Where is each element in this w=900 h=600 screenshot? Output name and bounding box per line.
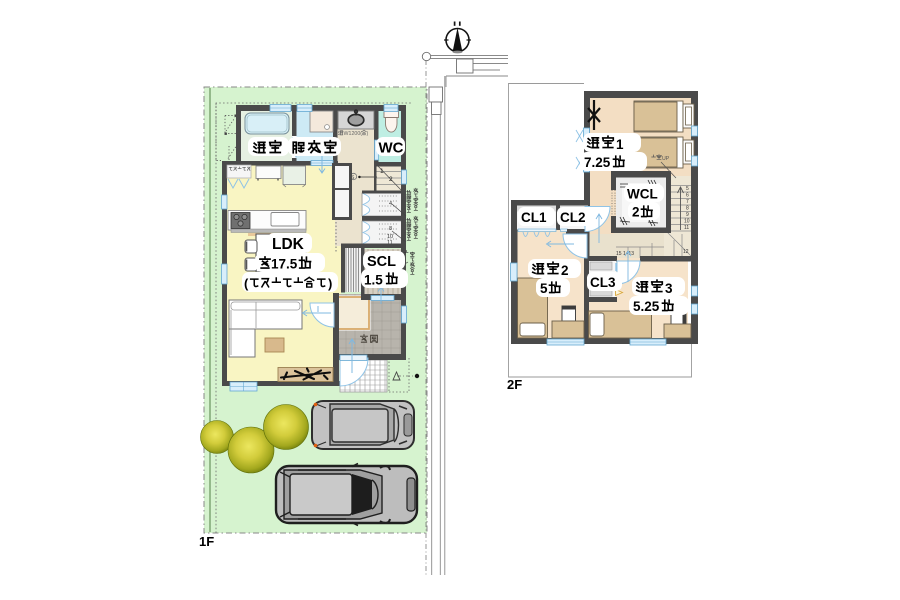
svg-text:2: 2: [632, 205, 640, 220]
svg-text:LDK: LDK: [272, 236, 305, 253]
svg-text:): ): [367, 131, 369, 137]
svg-text:1: 1: [616, 137, 624, 152]
svg-text:CL2: CL2: [560, 210, 586, 225]
svg-text:5: 5: [540, 281, 548, 296]
svg-text:2: 2: [561, 263, 569, 278]
svg-text:12: 12: [683, 249, 689, 255]
svg-text:CL1: CL1: [521, 210, 547, 225]
svg-text:15 1413: 15 1413: [616, 251, 634, 257]
svg-text:WC: WC: [379, 140, 404, 157]
svg-text:4: 4: [389, 201, 392, 207]
svg-text:2: 2: [389, 176, 393, 183]
svg-text:7: 7: [686, 199, 689, 205]
svg-text:WCL: WCL: [627, 187, 658, 202]
svg-text:1: 1: [380, 168, 384, 175]
svg-text:8: 8: [686, 206, 689, 212]
svg-text:5: 5: [686, 186, 689, 192]
svg-text:8: 8: [389, 226, 392, 232]
svg-text:): ): [328, 276, 332, 291]
svg-text:W1200(: W1200(: [344, 131, 363, 137]
svg-text:(: (: [244, 276, 249, 291]
svg-text:2F: 2F: [507, 377, 522, 392]
svg-text:9: 9: [686, 212, 689, 218]
svg-text:11: 11: [684, 225, 689, 231]
svg-text:3: 3: [665, 281, 673, 296]
svg-text:6: 6: [686, 193, 689, 199]
svg-text:1F: 1F: [199, 534, 214, 549]
svg-text:CL3: CL3: [590, 275, 616, 290]
svg-text:5.25: 5.25: [633, 299, 660, 314]
svg-text:UP: UP: [662, 156, 670, 162]
svg-text:1.5: 1.5: [364, 273, 383, 288]
svg-text:7.25: 7.25: [584, 155, 611, 170]
svg-text:10: 10: [684, 219, 690, 225]
svg-text:17.5: 17.5: [271, 257, 298, 272]
svg-text:SCL: SCL: [367, 254, 396, 270]
